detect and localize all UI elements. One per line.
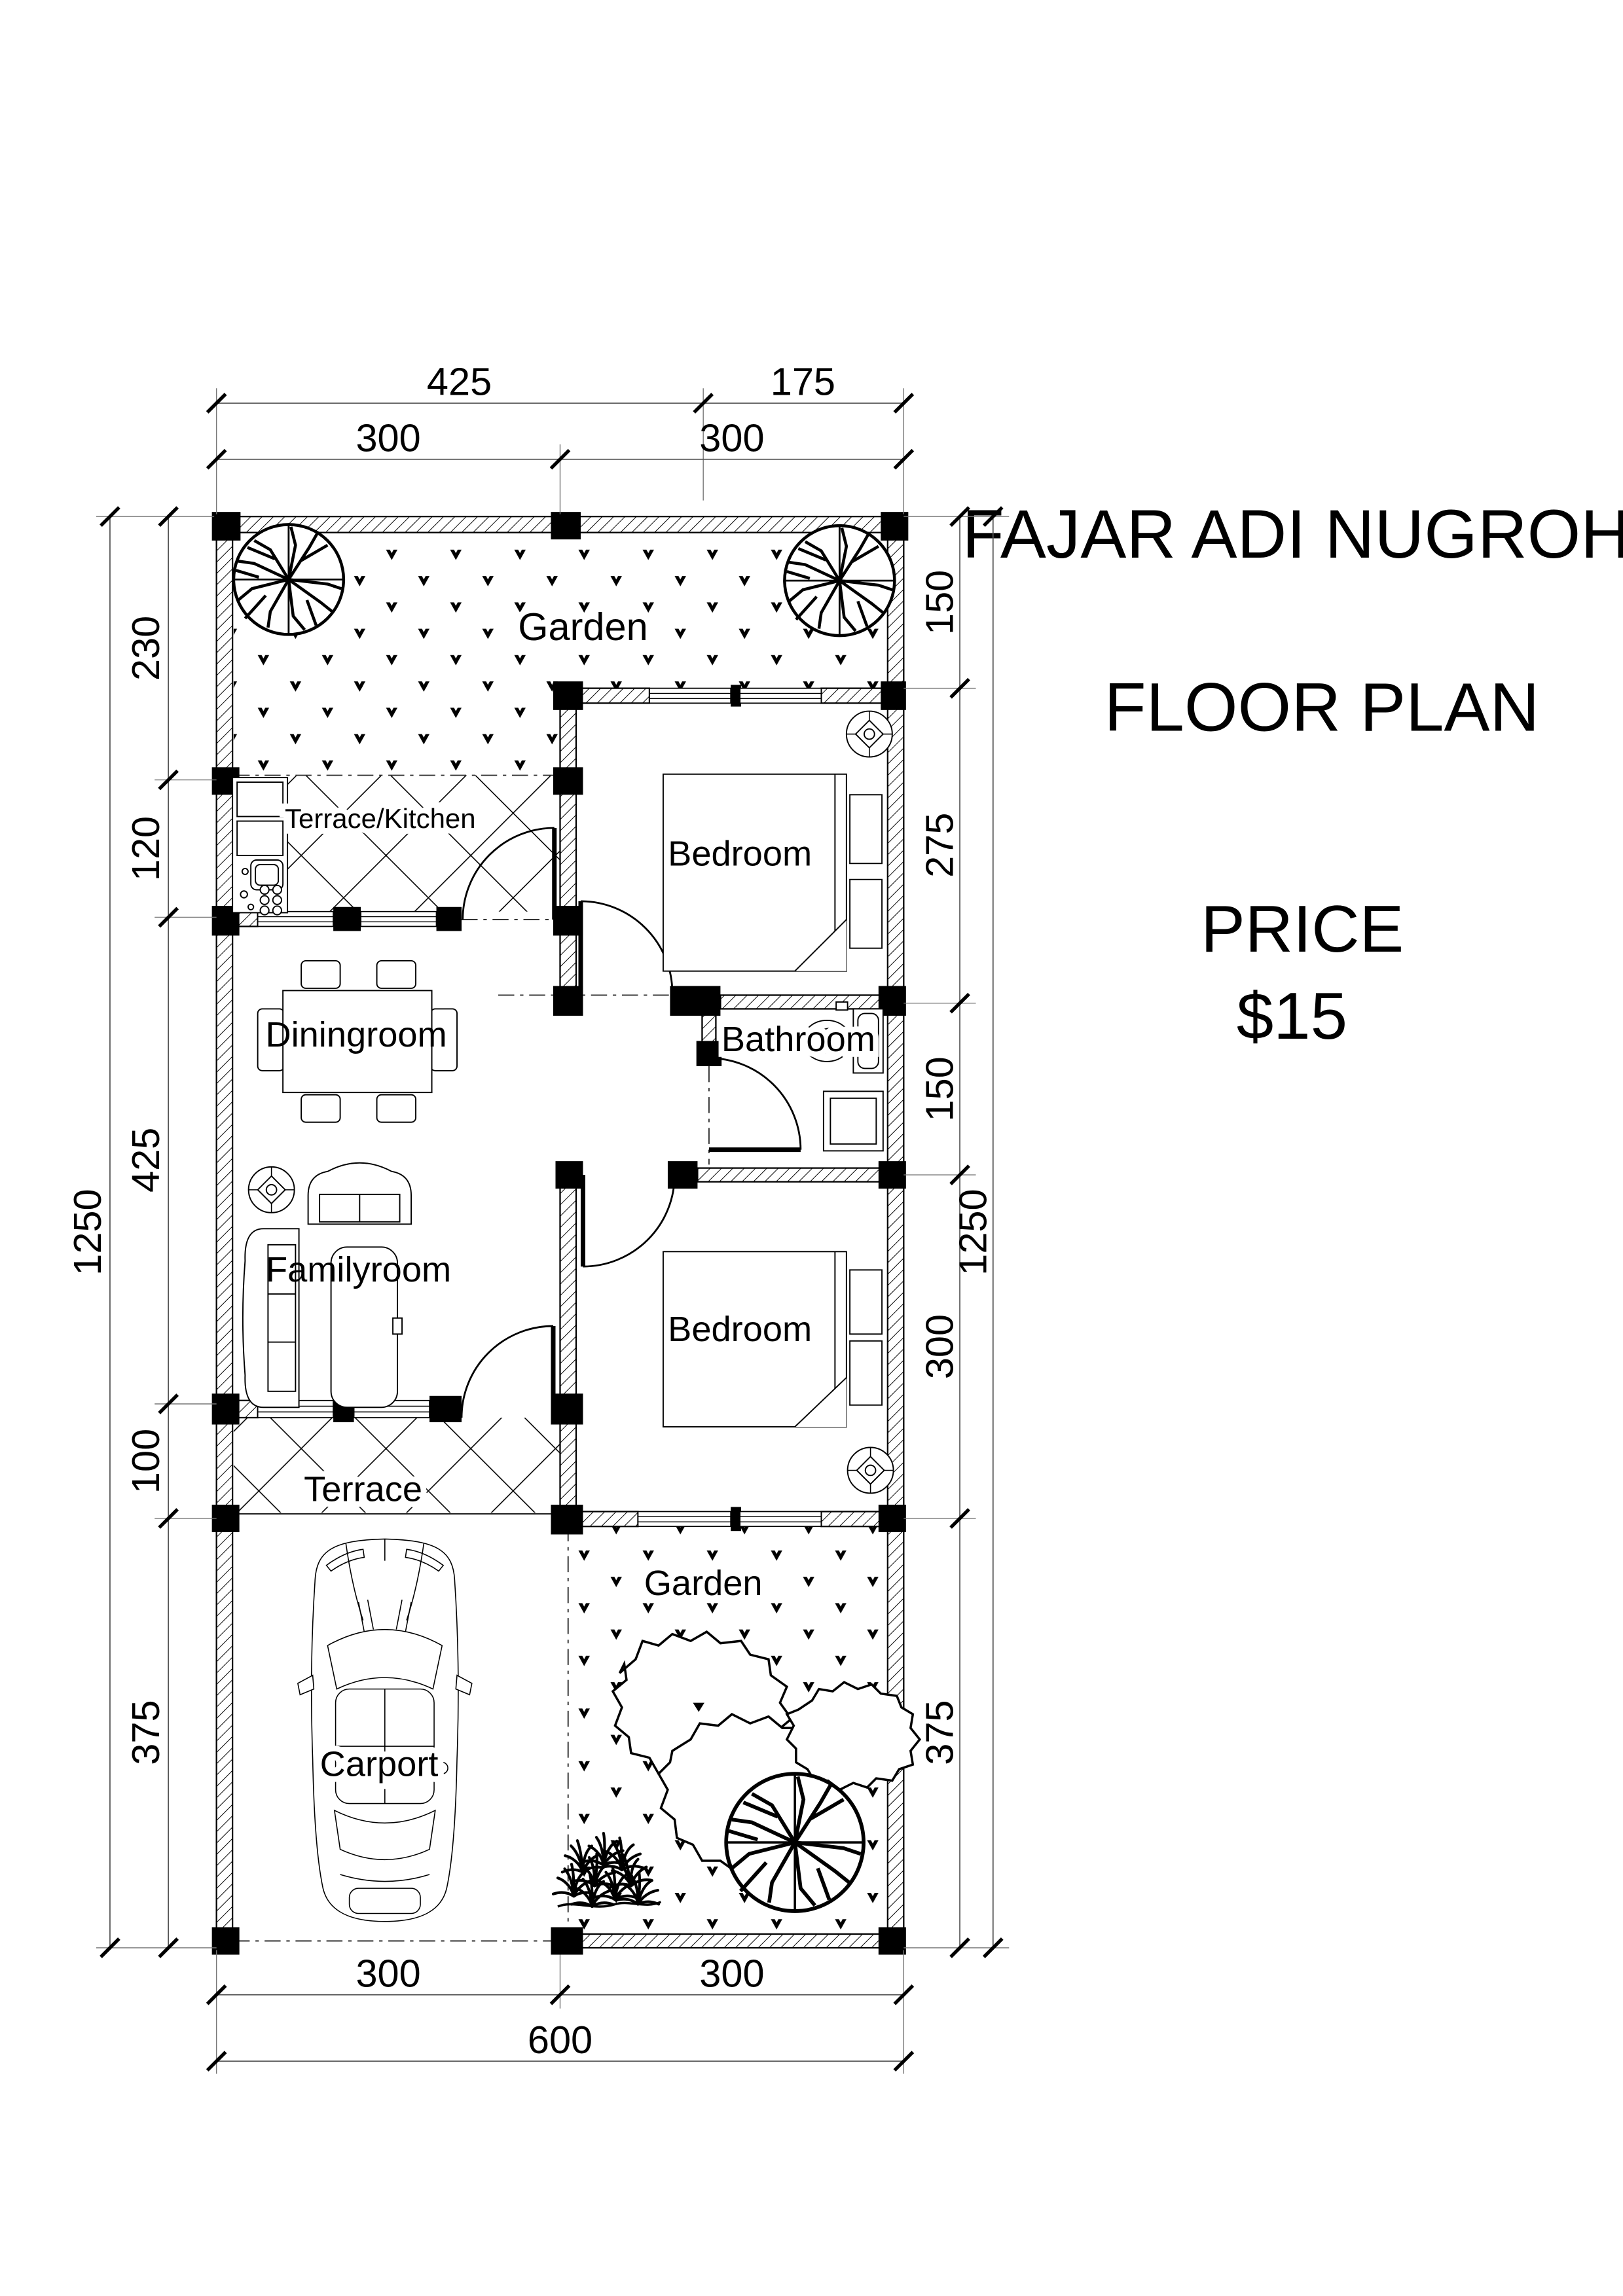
room-label-diningroom: Diningroom xyxy=(265,1015,447,1054)
dim-bottom-300b: 300 xyxy=(699,1951,764,1995)
dim-left-375: 375 xyxy=(124,1700,168,1765)
dim-right-150a: 150 xyxy=(918,570,962,635)
wall-left xyxy=(217,516,232,1948)
wall-garden-bottom xyxy=(576,1934,888,1948)
car-icon xyxy=(298,1539,472,1921)
room-label-garden-bottom: Garden xyxy=(644,1564,763,1603)
client-name: FAJAR ADI NUGROHO xyxy=(962,496,1623,573)
dim-right-1250: 1250 xyxy=(951,1189,994,1275)
price-label: PRICE xyxy=(1201,891,1404,966)
room-label-garden-top: Garden xyxy=(518,605,647,649)
dim-right-300: 300 xyxy=(918,1314,962,1379)
drawing-title: FLOOR PLAN xyxy=(1104,669,1539,745)
dim-right-375: 375 xyxy=(918,1700,962,1765)
door-terrace xyxy=(462,1326,553,1418)
floor-plan-sheet: FAJAR ADI NUGROHO FLOOR PLAN PRICE $15 xyxy=(0,0,1623,2296)
room-label-carport: Carport xyxy=(320,1745,439,1784)
dim-right-275: 275 xyxy=(918,813,962,878)
room-label-terrace: Terrace xyxy=(304,1470,422,1509)
room-label-terrace-kitchen: Terrace/Kitchen xyxy=(285,803,476,834)
dim-left-1250: 1250 xyxy=(65,1189,109,1275)
wall-bedroom2-bottom-a xyxy=(576,1511,638,1526)
wall-bedroom2-bottom-b xyxy=(821,1511,887,1526)
room-label-bathroom: Bathroom xyxy=(721,1020,875,1059)
kitchen-counter-icon xyxy=(232,778,287,915)
room-label-bedroom-top: Bedroom xyxy=(668,834,812,874)
dim-bottom-300a: 300 xyxy=(356,1951,420,1995)
dim-top-300a: 300 xyxy=(356,416,420,459)
door-bedroom-bottom xyxy=(583,1175,674,1266)
dim-bottom-600: 600 xyxy=(528,2018,593,2062)
dim-left-120: 120 xyxy=(124,816,168,881)
wall-bathroom-bottom xyxy=(697,1168,887,1182)
wall-bedroom1-left xyxy=(560,689,575,997)
dim-left-425: 425 xyxy=(124,1128,168,1193)
dim-top-425: 425 xyxy=(427,360,492,404)
floor-plan-drawing: Garden Terrace/Kitchen Bedroom Diningroo… xyxy=(65,360,1009,2074)
wall-bedroom1-top-a xyxy=(576,689,649,704)
dim-top-300b: 300 xyxy=(699,416,764,459)
wall-bedroom1-top-b xyxy=(821,689,887,704)
room-label-familyroom: Familyroom xyxy=(266,1250,451,1289)
sofa-icon xyxy=(308,1163,411,1225)
room-label-bedroom-bottom: Bedroom xyxy=(668,1310,812,1349)
door-bathroom xyxy=(709,1058,801,1150)
wall-bedroom2-left xyxy=(560,1182,575,1512)
floor-plan-svg: FAJAR ADI NUGROHO FLOOR PLAN PRICE $15 xyxy=(0,0,1623,2296)
title-block: FAJAR ADI NUGROHO FLOOR PLAN PRICE $15 xyxy=(962,496,1623,1053)
dim-right-150b: 150 xyxy=(918,1056,962,1121)
door-bedroom-top xyxy=(581,901,672,993)
shower-tray-icon xyxy=(824,1091,883,1151)
wall-bedroom1-bottom xyxy=(720,995,887,1009)
garden-top-lawn-left xyxy=(234,686,560,775)
price-value: $15 xyxy=(1237,978,1347,1053)
dim-left-100: 100 xyxy=(124,1429,168,1494)
window xyxy=(649,685,821,706)
dim-left-230: 230 xyxy=(124,616,168,681)
dim-top-175: 175 xyxy=(771,360,835,404)
